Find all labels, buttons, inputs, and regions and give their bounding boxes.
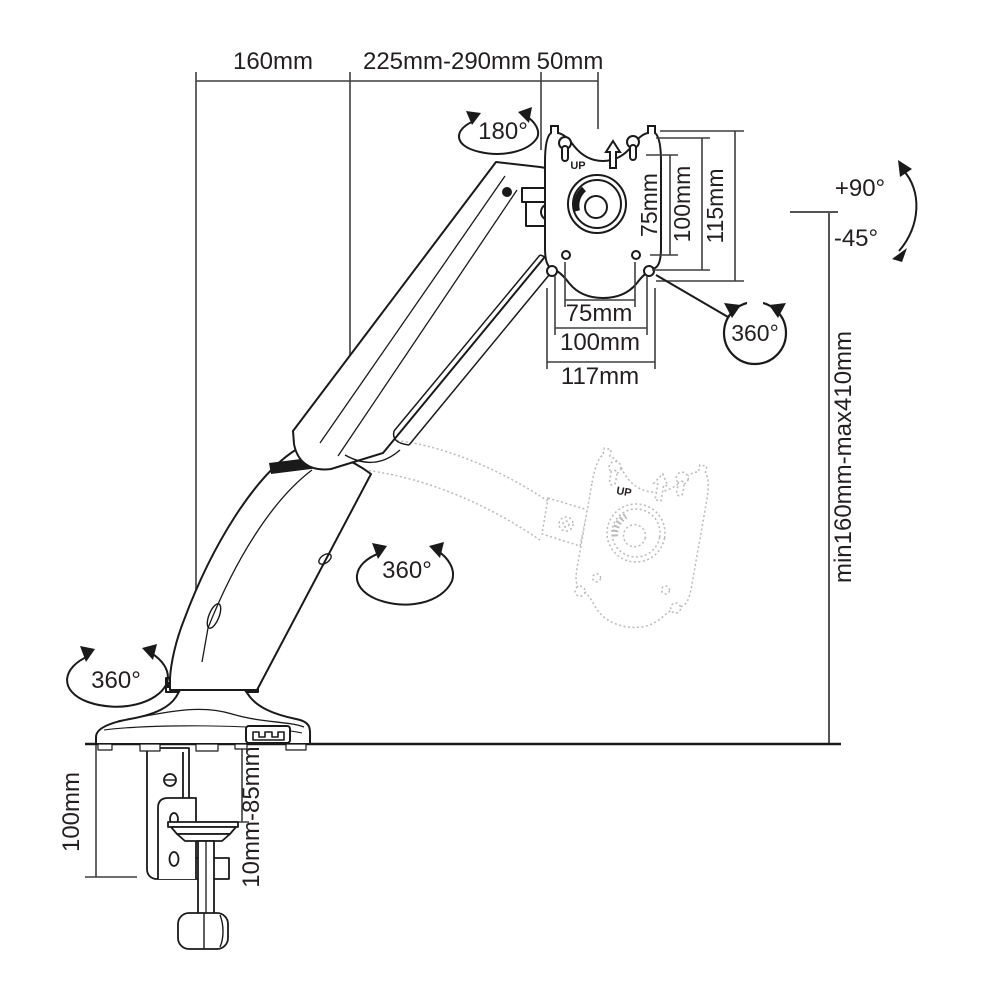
riser-column <box>170 449 371 690</box>
height-range-label: min160mm-max410mm <box>830 331 857 583</box>
plate-rotation-label: 360° <box>731 320 779 346</box>
up-label: UP <box>570 160 585 172</box>
label-head-swivel: 180° <box>478 118 528 145</box>
tilt-arc <box>892 160 916 262</box>
vesa-v115-label: 115mm <box>702 169 728 244</box>
base-rotation-label: 360° <box>91 667 141 694</box>
vesa-h75-label: 75mm <box>566 300 633 327</box>
vesa-v75-label: 75mm <box>636 173 662 237</box>
dim-label-arm-range: 225mm-290mm <box>363 48 531 75</box>
diagram-page: UP <box>0 0 1000 1000</box>
ghost-vesa-plate <box>568 447 712 637</box>
clamp-height-label: 100mm <box>58 772 85 852</box>
dim-label-head-depth: 50mm <box>537 48 604 75</box>
dim-label-reach: 160mm <box>233 48 313 75</box>
desk-clamp <box>147 748 238 949</box>
arm-drawing <box>85 162 841 949</box>
tilt-up-label: +90° <box>835 175 885 202</box>
clamp-range-label: 10mm-85mm <box>238 746 265 887</box>
vesa-h100-label: 100mm <box>560 329 640 356</box>
vesa-h117-label: 117mm <box>561 363 639 390</box>
arm-rotation-label: 360° <box>382 557 432 584</box>
vesa-v100-label: 100mm <box>669 166 695 243</box>
tilt-down-label: -45° <box>834 225 878 252</box>
monitor-arm-diagram: UP <box>0 0 1000 1000</box>
